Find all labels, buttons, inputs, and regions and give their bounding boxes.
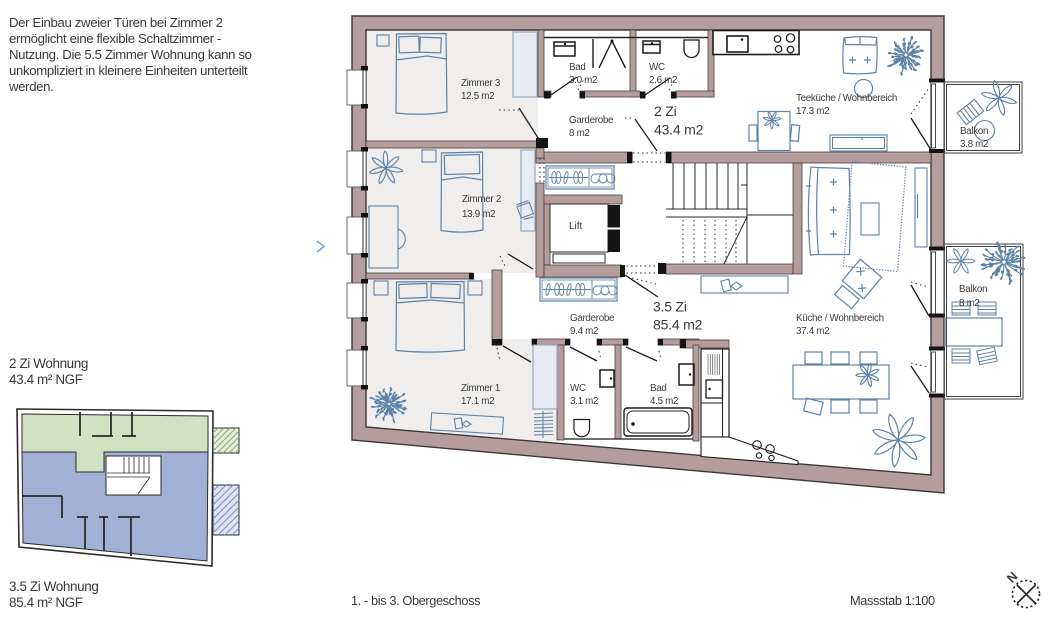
svg-text:12.5 m2: 12.5 m2 — [461, 91, 494, 102]
svg-text:Der Einbau zweier Türen bei Zi: Der Einbau zweier Türen bei Zimmer 2 — [9, 15, 223, 30]
svg-text:3.8 m2: 3.8 m2 — [960, 139, 988, 150]
svg-text:8 m2: 8 m2 — [959, 298, 980, 309]
svg-text:Garderobe: Garderobe — [569, 115, 614, 126]
svg-text:WC: WC — [649, 62, 665, 73]
svg-text:unkompliziert in kleinere Einh: unkompliziert in kleinere Einheiten unte… — [9, 63, 248, 78]
svg-text:43.4 m² NGF: 43.4 m² NGF — [9, 372, 83, 387]
svg-text:Bad: Bad — [650, 383, 667, 394]
svg-text:4.5 m2: 4.5 m2 — [650, 396, 678, 407]
svg-text:Balkon: Balkon — [959, 284, 987, 295]
svg-text:17.3 m2: 17.3 m2 — [796, 106, 829, 117]
svg-text:85.4 m2: 85.4 m2 — [653, 317, 703, 333]
svg-text:2 Zi: 2 Zi — [654, 103, 677, 119]
svg-text:Balkon: Balkon — [960, 126, 988, 137]
svg-text:Lift: Lift — [569, 221, 583, 232]
svg-text:Bad: Bad — [569, 62, 586, 73]
svg-text:Küche / Wohnbereich: Küche / Wohnbereich — [796, 313, 884, 324]
svg-text:Garderobe: Garderobe — [570, 313, 615, 324]
svg-text:Nutzung. Die 5.5 Zimmer Wohnun: Nutzung. Die 5.5 Zimmer Wohnung kann so — [9, 47, 252, 62]
svg-text:13.9 m2: 13.9 m2 — [462, 209, 495, 220]
svg-text:3.5 Zi: 3.5 Zi — [653, 299, 687, 315]
svg-text:3.1 m2: 3.1 m2 — [570, 396, 598, 407]
svg-text:37.4 m2: 37.4 m2 — [796, 326, 829, 337]
svg-text:Zimmer 2: Zimmer 2 — [462, 194, 501, 205]
svg-text:17.1 m2: 17.1 m2 — [461, 396, 494, 407]
svg-text:3.5 Zi Wohnung: 3.5 Zi Wohnung — [9, 579, 98, 594]
svg-text:ermöglicht eine flexible Schal: ermöglicht eine flexible Schaltzimmer - — [9, 31, 221, 46]
svg-text:1. - bis 3. Obergeschoss: 1. - bis 3. Obergeschoss — [351, 593, 480, 608]
svg-text:Teeküche / Wohnbereich: Teeküche / Wohnbereich — [796, 93, 897, 104]
svg-text:85.4 m² NGF: 85.4 m² NGF — [9, 595, 83, 610]
svg-text:werden.: werden. — [8, 79, 53, 94]
svg-text:2.6 m2: 2.6 m2 — [649, 75, 677, 86]
svg-text:2 Zi Wohnung: 2 Zi Wohnung — [9, 356, 88, 371]
svg-text:3.0 m2: 3.0 m2 — [569, 75, 597, 86]
svg-text:Massstab 1:100: Massstab 1:100 — [850, 593, 935, 608]
svg-text:Zimmer 1: Zimmer 1 — [461, 383, 500, 394]
svg-text:9.4 m2: 9.4 m2 — [570, 326, 598, 337]
svg-text:8 m2: 8 m2 — [569, 128, 590, 139]
svg-text:Zimmer 3: Zimmer 3 — [461, 78, 501, 89]
svg-text:43.4 m2: 43.4 m2 — [654, 122, 704, 138]
svg-text:WC: WC — [570, 383, 586, 394]
